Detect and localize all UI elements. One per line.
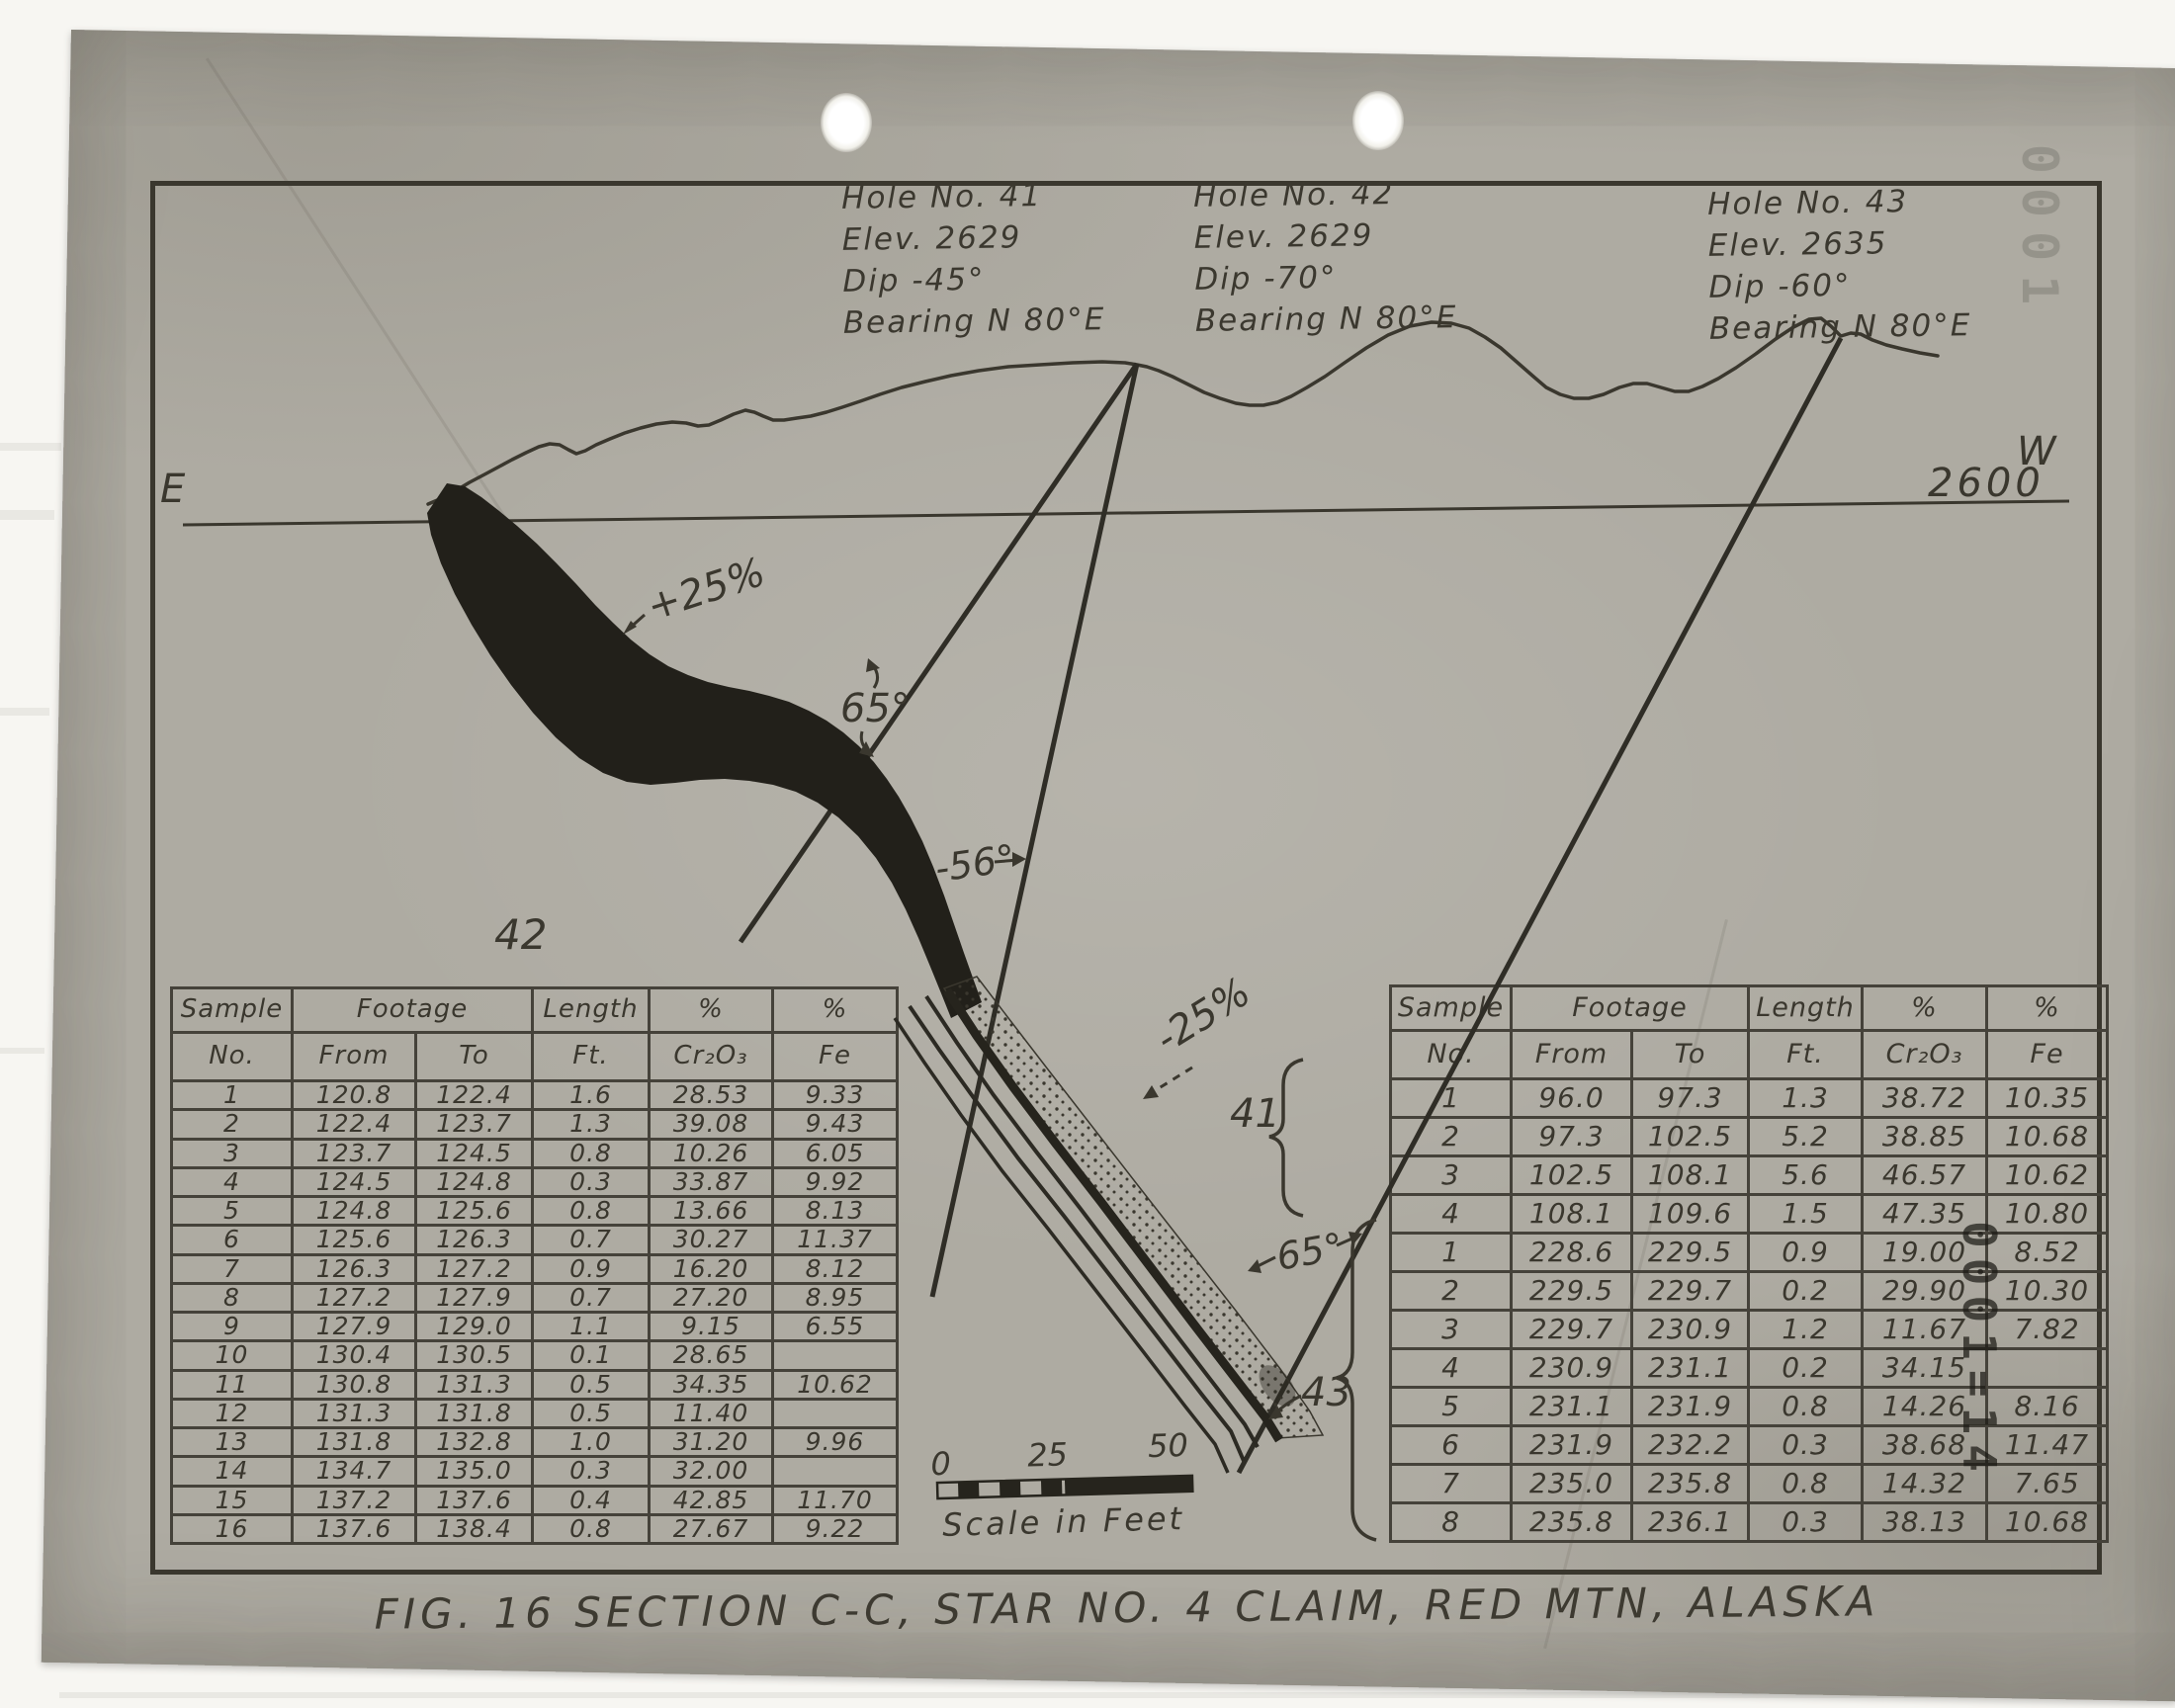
table-cell: 14 — [172, 1457, 293, 1486]
table-cell: 8.13 — [773, 1197, 898, 1226]
table-cell: 124.8 — [293, 1197, 416, 1226]
table-cell: 97.3 — [1512, 1118, 1632, 1156]
table-cell: 130.5 — [416, 1341, 533, 1370]
punch-hole-left — [821, 93, 872, 152]
table-cell: 5 — [1391, 1388, 1512, 1426]
table-cell: 123.7 — [416, 1110, 533, 1139]
sample-table-hole-42: Sample Footage Length % % No. From To Ft… — [170, 986, 899, 1545]
table-cell: 124.5 — [293, 1167, 416, 1196]
table-cell: 125.6 — [293, 1226, 416, 1254]
table-cell: 10.62 — [1987, 1156, 2108, 1195]
table-cell: 127.9 — [416, 1283, 533, 1312]
table-row: 3102.5108.15.646.5710.62 — [1391, 1156, 2108, 1195]
table-cell: 5.6 — [1749, 1156, 1863, 1195]
table-cell: 127.2 — [416, 1254, 533, 1283]
table-cell: 1 — [172, 1081, 293, 1110]
table-cell: 10.68 — [1987, 1503, 2108, 1542]
table-cell: 231.1 — [1632, 1349, 1749, 1388]
table-cell: 9.43 — [773, 1110, 898, 1139]
table-cell: 124.8 — [416, 1167, 533, 1196]
col-header-fe: Fe — [773, 1033, 898, 1081]
table-cell: 127.9 — [293, 1313, 416, 1341]
table-cell: 9.96 — [773, 1428, 898, 1457]
table-cell: 39.08 — [650, 1110, 773, 1139]
col-header-from: From — [293, 1033, 416, 1081]
table-cell: 10.26 — [650, 1139, 773, 1167]
scan-streak — [0, 510, 54, 520]
table-cell: 2 — [1391, 1272, 1512, 1311]
table-cell: 1.5 — [1749, 1195, 1863, 1234]
table-cell: 0.8 — [533, 1197, 650, 1226]
col-header-cr2o3: Cr₂O₃ — [650, 1033, 773, 1081]
table-cell: 96.0 — [1512, 1079, 1632, 1118]
table-cell: 1.1 — [533, 1313, 650, 1341]
table-cell: 11.40 — [650, 1399, 773, 1427]
col-header-length: Length — [533, 988, 650, 1033]
table-cell: 131.3 — [416, 1370, 533, 1399]
table-row: 297.3102.55.238.8510.68 — [1391, 1118, 2108, 1156]
table-cell — [773, 1341, 898, 1370]
table-cell: 6 — [1391, 1426, 1512, 1465]
hole-41-elev: Elev. 2629 — [841, 215, 1104, 261]
table-cell: 10 — [172, 1341, 293, 1370]
table-cell: 138.4 — [416, 1514, 533, 1543]
table-cell: 9.22 — [773, 1514, 898, 1543]
punch-hole-right — [1352, 91, 1404, 150]
table-cell: 3 — [1391, 1156, 1512, 1195]
table-cell: 231.1 — [1512, 1388, 1632, 1426]
hole-42-bearing: Bearing N 80°E — [1195, 297, 1458, 342]
table-cell: 0.8 — [1749, 1465, 1863, 1503]
table-cell: 137.2 — [293, 1486, 416, 1514]
table-cell: 132.8 — [416, 1428, 533, 1457]
table-cell: 3 — [1391, 1311, 1512, 1349]
table-cell: 0.3 — [533, 1457, 650, 1486]
table-row: 2122.4123.71.339.089.43 — [172, 1110, 898, 1139]
table-cell: 235.0 — [1512, 1465, 1632, 1503]
table-cell: 229.5 — [1632, 1234, 1749, 1272]
stamp-faint-top-right: 0001 — [2011, 144, 2068, 318]
table-cell: 9 — [172, 1313, 293, 1341]
table-cell: 6.55 — [773, 1313, 898, 1341]
table-cell: 232.2 — [1632, 1426, 1749, 1465]
table-cell: 0.3 — [533, 1167, 650, 1196]
table-cell: 0.5 — [533, 1370, 650, 1399]
table-cell: 38.13 — [1863, 1503, 1987, 1542]
table-cell: 3 — [172, 1139, 293, 1167]
table-row: 11130.8131.30.534.3510.62 — [172, 1370, 898, 1399]
hole-42-name: Hole No. 42 — [1193, 172, 1456, 217]
table-cell: 28.53 — [650, 1081, 773, 1110]
table-cell: 8.12 — [773, 1254, 898, 1283]
col-header-to: To — [1632, 1031, 1749, 1079]
col-header-pct1: % — [650, 988, 773, 1033]
table-cell: 108.1 — [1632, 1156, 1749, 1195]
col-header-fe: Fe — [1987, 1031, 2108, 1079]
table-cell: 8 — [1391, 1503, 1512, 1542]
table-cell: 0.7 — [533, 1283, 650, 1312]
table-row: 8127.2127.90.727.208.95 — [172, 1283, 898, 1312]
table-cell: 137.6 — [293, 1514, 416, 1543]
table-cell: 131.8 — [416, 1399, 533, 1427]
table-row: 12131.3131.80.511.40 — [172, 1399, 898, 1427]
table-cell: 16.20 — [650, 1254, 773, 1283]
table-cell: 102.5 — [1512, 1156, 1632, 1195]
table-cell: 0.9 — [533, 1254, 650, 1283]
table-row: 15137.2137.60.442.8511.70 — [172, 1486, 898, 1514]
table-cell: 46.57 — [1863, 1156, 1987, 1195]
table-cell: 135.0 — [416, 1457, 533, 1486]
table-cell: 38.72 — [1863, 1079, 1987, 1118]
table-cell: 7 — [172, 1254, 293, 1283]
col-header-sample: Sample — [172, 988, 293, 1033]
table-cell: 1.0 — [533, 1428, 650, 1457]
table-cell: 229.7 — [1632, 1272, 1749, 1311]
table-cell: 129.0 — [416, 1313, 533, 1341]
table-cell: 11.37 — [773, 1226, 898, 1254]
table-cell: 1 — [1391, 1079, 1512, 1118]
table-cell: 13 — [172, 1428, 293, 1457]
table-cell: 33.87 — [650, 1167, 773, 1196]
table-cell: 1 — [1391, 1234, 1512, 1272]
table-row: 7126.3127.20.916.208.12 — [172, 1254, 898, 1283]
table-cell: 6.05 — [773, 1139, 898, 1167]
table-cell: 108.1 — [1512, 1195, 1632, 1234]
hole-43-elev: Elev. 2635 — [1707, 221, 1970, 267]
table-cell: 5 — [172, 1197, 293, 1226]
col-header-pct2: % — [773, 988, 898, 1033]
hole-42-annotation: Hole No. 42 Elev. 2629 Dip -70° Bearing … — [1193, 172, 1458, 342]
table-cell: 32.00 — [650, 1457, 773, 1486]
table-cell: 4 — [1391, 1349, 1512, 1388]
table-cell: 0.9 — [1749, 1234, 1863, 1272]
table-cell — [773, 1457, 898, 1486]
table-cell: 126.3 — [416, 1226, 533, 1254]
table-cell: 0.2 — [1749, 1272, 1863, 1311]
table-cell: 235.8 — [1632, 1465, 1749, 1503]
table-cell: 27.20 — [650, 1283, 773, 1312]
table-cell: 0.4 — [533, 1486, 650, 1514]
table-cell: 122.4 — [416, 1081, 533, 1110]
hole-41-name: Hole No. 41 — [841, 174, 1104, 219]
table-cell: 130.8 — [293, 1370, 416, 1399]
table-cell: 1.2 — [1749, 1311, 1863, 1349]
hole-41-bearing: Bearing N 80°E — [843, 299, 1106, 344]
table-cell: 27.67 — [650, 1514, 773, 1543]
col-header-no: No. — [172, 1033, 293, 1081]
col-header-ft: Ft. — [533, 1033, 650, 1081]
table-cell: 231.9 — [1512, 1426, 1632, 1465]
hole-42-dip: Dip -70° — [1194, 255, 1457, 300]
table-cell: 120.8 — [293, 1081, 416, 1110]
table-row: 8235.8236.10.338.1310.68 — [1391, 1503, 2108, 1542]
table-cell: 34.35 — [650, 1370, 773, 1399]
table-cell: 124.5 — [416, 1139, 533, 1167]
table-cell: 10.62 — [773, 1370, 898, 1399]
table-cell: 123.7 — [293, 1139, 416, 1167]
col-header-pct1: % — [1863, 986, 1987, 1031]
table-cell: 137.6 — [416, 1486, 533, 1514]
hole-42-elev: Elev. 2629 — [1193, 213, 1456, 259]
table-cell: 15 — [172, 1486, 293, 1514]
table-cell: 131.8 — [293, 1428, 416, 1457]
col-header-ft: Ft. — [1749, 1031, 1863, 1079]
hole-43-bearing: Bearing N 80°E — [1709, 304, 1972, 350]
table-cell: 4 — [1391, 1195, 1512, 1234]
table-cell: 8.95 — [773, 1283, 898, 1312]
table-cell: 130.4 — [293, 1341, 416, 1370]
table-cell: 2 — [1391, 1118, 1512, 1156]
hole-43-dip: Dip -60° — [1708, 263, 1971, 308]
table-cell: 0.2 — [1749, 1349, 1863, 1388]
table-row: 4124.5124.80.333.879.92 — [172, 1167, 898, 1196]
table-row: 14134.7135.00.332.00 — [172, 1457, 898, 1486]
hole-43-name: Hole No. 43 — [1707, 180, 1970, 225]
table-cell: 28.65 — [650, 1341, 773, 1370]
table-cell: 9.15 — [650, 1313, 773, 1341]
table-cell: 0.8 — [533, 1514, 650, 1543]
table-cell: 1.6 — [533, 1081, 650, 1110]
scan-streak — [0, 708, 49, 716]
table-cell: 13.66 — [650, 1197, 773, 1226]
table-cell: 42.85 — [650, 1486, 773, 1514]
table-cell: 5.2 — [1749, 1118, 1863, 1156]
table-row: 5124.8125.60.813.668.13 — [172, 1197, 898, 1226]
table-cell: 235.8 — [1512, 1503, 1632, 1542]
table-cell: 11 — [172, 1370, 293, 1399]
table-row: 3123.7124.50.810.266.05 — [172, 1139, 898, 1167]
col-header-from: From — [1512, 1031, 1632, 1079]
table-row: 6125.6126.30.730.2711.37 — [172, 1226, 898, 1254]
table-cell: 109.6 — [1632, 1195, 1749, 1234]
table-cell: 126.3 — [293, 1254, 416, 1283]
stamp-overlay: 0001=14 — [1953, 1221, 2006, 1482]
table-cell: 236.1 — [1632, 1503, 1749, 1542]
table-row: 10130.4130.50.128.65 — [172, 1341, 898, 1370]
table-row: 13131.8132.81.031.209.96 — [172, 1428, 898, 1457]
table-cell: 0.3 — [1749, 1426, 1863, 1465]
table-cell: 122.4 — [293, 1110, 416, 1139]
col-header-no: No. — [1391, 1031, 1512, 1079]
table-cell: 125.6 — [416, 1197, 533, 1226]
table-cell: 10.35 — [1987, 1079, 2108, 1118]
table-cell: 0.7 — [533, 1226, 650, 1254]
table-cell: 12 — [172, 1399, 293, 1427]
table-cell: 228.6 — [1512, 1234, 1632, 1272]
table-row: 1120.8122.41.628.539.33 — [172, 1081, 898, 1110]
table-cell: 9.92 — [773, 1167, 898, 1196]
hole-41-dip: Dip -45° — [842, 257, 1105, 302]
table-cell: 30.27 — [650, 1226, 773, 1254]
col-header-length: Length — [1749, 986, 1863, 1031]
scan-streak — [0, 443, 61, 451]
scan-streak — [0, 1048, 44, 1054]
table-cell: 1.3 — [533, 1110, 650, 1139]
table-cell: 10.68 — [1987, 1118, 2108, 1156]
col-header-pct2: % — [1987, 986, 2108, 1031]
table-cell: 0.3 — [1749, 1503, 1863, 1542]
table-cell: 230.9 — [1632, 1311, 1749, 1349]
table-cell: 16 — [172, 1514, 293, 1543]
table-cell: 134.7 — [293, 1457, 416, 1486]
table-cell: 102.5 — [1632, 1118, 1749, 1156]
table-cell: 9.33 — [773, 1081, 898, 1110]
col-header-sample: Sample — [1391, 986, 1512, 1031]
table-cell: 229.7 — [1512, 1311, 1632, 1349]
table-cell: 6 — [172, 1226, 293, 1254]
table-cell: 127.2 — [293, 1283, 416, 1312]
table-cell: 31.20 — [650, 1428, 773, 1457]
table-cell: 230.9 — [1512, 1349, 1632, 1388]
table-cell: 0.8 — [1749, 1388, 1863, 1426]
col-header-footage: Footage — [293, 988, 533, 1033]
table-cell: 0.8 — [533, 1139, 650, 1167]
table-cell — [773, 1399, 898, 1427]
col-header-to: To — [416, 1033, 533, 1081]
table-cell: 11.70 — [773, 1486, 898, 1514]
table-cell: 8 — [172, 1283, 293, 1312]
table-cell: 1.3 — [1749, 1079, 1863, 1118]
table-row: 196.097.31.338.7210.35 — [1391, 1079, 2108, 1118]
table-cell: 38.85 — [1863, 1118, 1987, 1156]
table-cell: 0.5 — [533, 1399, 650, 1427]
table-cell: 229.5 — [1512, 1272, 1632, 1311]
table-cell: 97.3 — [1632, 1079, 1749, 1118]
table-cell: 231.9 — [1632, 1388, 1749, 1426]
col-header-cr2o3: Cr₂O₃ — [1863, 1031, 1987, 1079]
table-cell: 131.3 — [293, 1399, 416, 1427]
table-cell: 7 — [1391, 1465, 1512, 1503]
table-cell: 0.1 — [533, 1341, 650, 1370]
table-cell: 4 — [172, 1167, 293, 1196]
col-header-footage: Footage — [1512, 986, 1749, 1031]
hole-43-annotation: Hole No. 43 Elev. 2635 Dip -60° Bearing … — [1707, 180, 1972, 350]
table-cell: 2 — [172, 1110, 293, 1139]
table-row: 9127.9129.01.19.156.55 — [172, 1313, 898, 1341]
hole-41-annotation: Hole No. 41 Elev. 2629 Dip -45° Bearing … — [841, 174, 1106, 344]
table-row: 16137.6138.40.827.679.22 — [172, 1514, 898, 1543]
